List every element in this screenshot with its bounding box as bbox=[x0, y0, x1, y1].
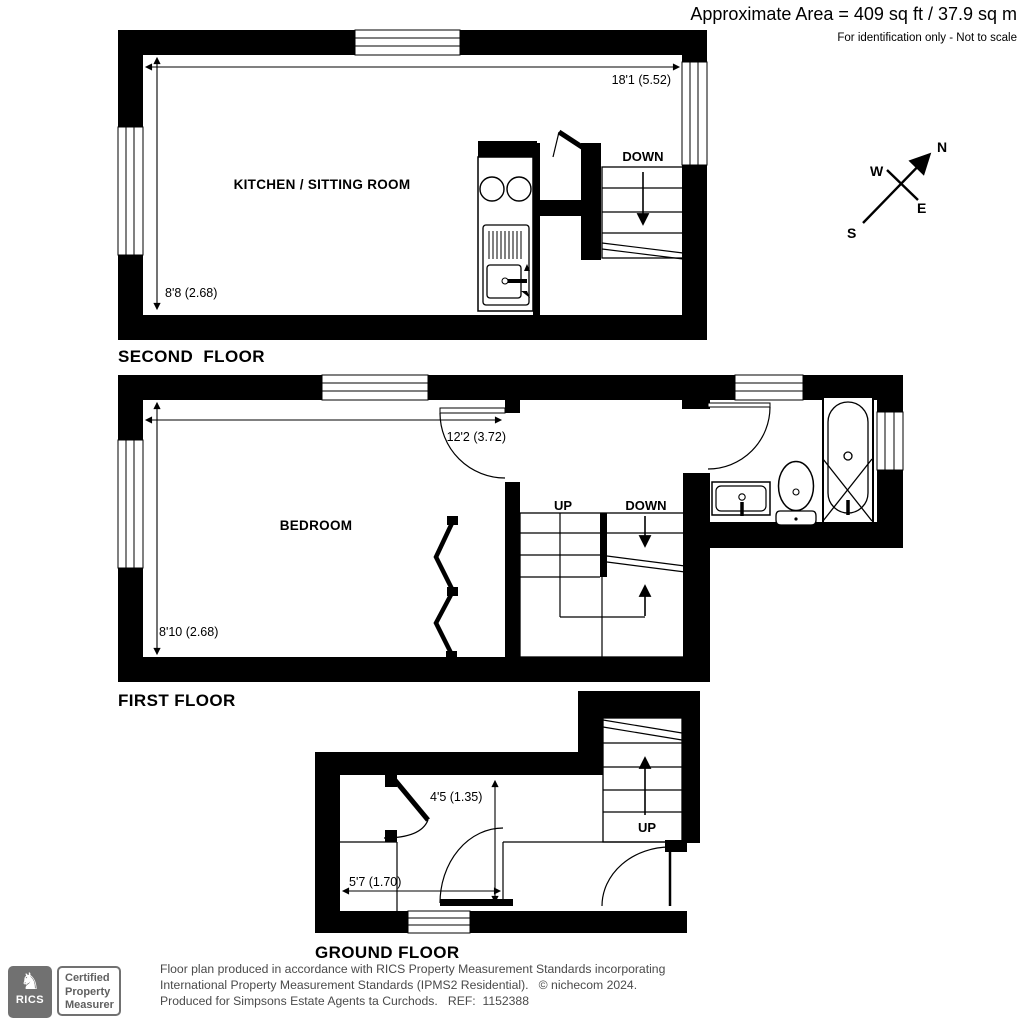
first-floor-title: FIRST FLOOR bbox=[118, 691, 236, 710]
second-floor-title: SECOND FLOOR bbox=[118, 347, 265, 366]
stair-up-label: UP bbox=[554, 498, 572, 513]
room-label-kitchen: KITCHEN / SITTING ROOM bbox=[234, 177, 411, 192]
floorplan-page: Approximate Area = 409 sq ft / 37.9 sq m… bbox=[0, 0, 1024, 1020]
stair-up-label: UP bbox=[638, 820, 656, 835]
ground-floor-plan: 4'5 (1.35) 5'7 (1.70) UP GROUND FLOOR bbox=[315, 691, 700, 962]
ground-floor-height-dim: 4'5 (1.35) bbox=[430, 790, 482, 804]
rics-badge: ♞ RICS bbox=[8, 966, 52, 1018]
approx-area-text: Approximate Area = 409 sq ft / 37.9 sq m bbox=[690, 4, 1017, 24]
certified-property-measurer-badge: Certified Property Measurer bbox=[57, 966, 121, 1016]
window-icon bbox=[735, 375, 803, 400]
compass-rose-icon: N W E S bbox=[847, 139, 947, 241]
footer-line-3: Produced for Simpsons Estate Agents ta C… bbox=[160, 994, 720, 1010]
stair-down-label: DOWN bbox=[622, 149, 663, 164]
footer-line-1: Floor plan produced in accordance with R… bbox=[160, 962, 720, 978]
cert-line: Measurer bbox=[65, 999, 119, 1013]
sink-icon bbox=[712, 482, 770, 516]
door-icon bbox=[708, 403, 770, 469]
disclaimer-text: For identification only - Not to scale bbox=[837, 32, 1017, 44]
bathtub-icon bbox=[823, 397, 873, 523]
compass-n-label: N bbox=[937, 139, 947, 155]
rics-lion-icon: ♞ bbox=[8, 968, 52, 994]
door-icon bbox=[384, 779, 428, 838]
window-icon bbox=[877, 412, 903, 470]
kitchen-counter-icon bbox=[478, 157, 533, 311]
door-icon bbox=[553, 132, 585, 157]
hob-icon bbox=[507, 177, 531, 201]
window-icon bbox=[322, 375, 428, 400]
window-icon bbox=[118, 440, 143, 568]
window-icon bbox=[408, 911, 470, 933]
first-floor-height-dim: 8'10 (2.68) bbox=[159, 625, 218, 639]
folding-door-icon bbox=[436, 516, 458, 657]
ground-floor-title: GROUND FLOOR bbox=[315, 943, 460, 962]
toilet-icon bbox=[776, 462, 816, 526]
first-floor-width-dim: 12'2 (3.72) bbox=[447, 430, 506, 444]
compass-e-label: E bbox=[917, 200, 926, 216]
footer-line-2: International Property Measurement Stand… bbox=[160, 978, 720, 994]
staircase-icon bbox=[602, 167, 683, 259]
room-label-bedroom: BEDROOM bbox=[280, 518, 353, 533]
door-icon bbox=[440, 828, 513, 906]
stair-down-label: DOWN bbox=[625, 498, 666, 513]
compass-s-label: S bbox=[847, 225, 856, 241]
second-floor-plan: 18'1 (5.52) 8'8 (2.68) KITCHEN / SITTING… bbox=[118, 30, 707, 366]
second-floor-width-dim: 18'1 (5.52) bbox=[612, 73, 671, 87]
window-icon bbox=[682, 62, 707, 165]
footer-disclaimer: Floor plan produced in accordance with R… bbox=[160, 962, 720, 1009]
sink-icon bbox=[483, 225, 530, 305]
window-icon bbox=[355, 30, 460, 55]
door-icon bbox=[602, 847, 670, 906]
hob-icon bbox=[480, 177, 504, 201]
ground-floor-width-dim: 5'7 (1.70) bbox=[349, 875, 401, 889]
compass-w-label: W bbox=[870, 163, 884, 179]
floorplan-drawing: Approximate Area = 409 sq ft / 37.9 sq m… bbox=[0, 0, 1024, 1020]
window-icon bbox=[118, 127, 143, 255]
cert-line: Certified bbox=[65, 972, 119, 986]
rics-org-label: RICS bbox=[8, 994, 52, 1006]
first-floor-plan: 12'2 (3.72) 8'10 (2.68) BEDROOM UP DOWN … bbox=[118, 375, 903, 710]
cert-line: Property bbox=[65, 986, 119, 1000]
second-floor-height-dim: 8'8 (2.68) bbox=[165, 286, 217, 300]
